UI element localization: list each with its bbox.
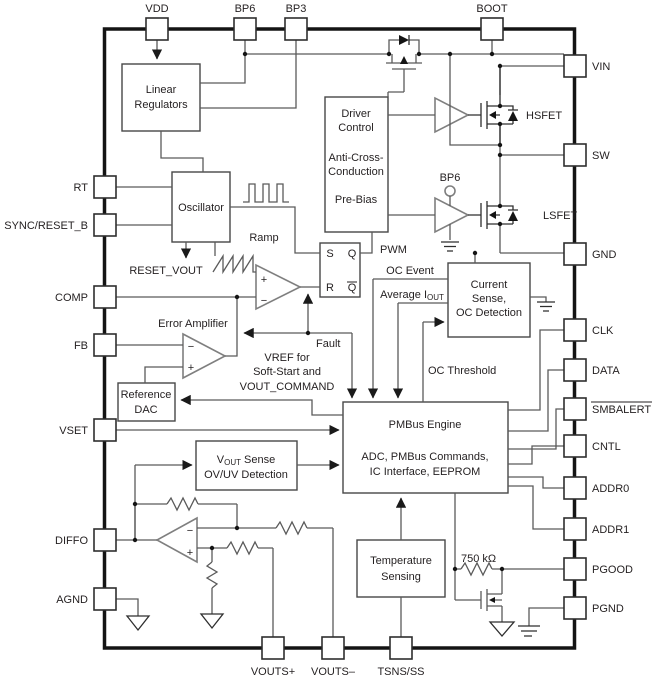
pin-label-data: DATA xyxy=(592,365,620,377)
pmbus-engine-label: PMBus Engine xyxy=(389,419,462,431)
svg-text:Control: Control xyxy=(338,122,373,134)
vref-label: VREF for xyxy=(264,352,310,364)
feedback-resistor xyxy=(167,498,198,510)
pin-label-gnd: GND xyxy=(592,249,617,261)
pin-vouts-plus xyxy=(262,637,284,659)
svg-text:Pre-Bias: Pre-Bias xyxy=(335,194,378,206)
pin-label-vdd: VDD xyxy=(145,3,168,15)
ground-ls-driver xyxy=(441,242,459,251)
wire-driver-inputs xyxy=(388,115,435,215)
latch-r: R xyxy=(326,282,334,294)
wire-smbalert xyxy=(508,409,564,449)
lsfet-symbol xyxy=(468,201,518,229)
diffamp-minus: − xyxy=(187,525,193,537)
wire-dac-to-plus xyxy=(145,367,183,383)
oc-event-label: OC Event xyxy=(386,265,434,277)
svg-text:Conduction: Conduction xyxy=(328,166,384,178)
pin-label-vouts-plus: VOUTS+ xyxy=(251,666,295,678)
diffamp-plus: + xyxy=(187,547,193,559)
ls-gate-driver xyxy=(435,198,468,232)
ground-pgnd xyxy=(518,626,540,636)
pin-pgnd xyxy=(564,597,586,619)
pmbus-engine-block xyxy=(343,402,508,493)
bp6-supply-node xyxy=(445,186,455,196)
blocks xyxy=(118,64,530,597)
pin-clk xyxy=(564,319,586,341)
wire-hs-driver-rail xyxy=(450,54,500,145)
pin-tsns-ss xyxy=(390,637,412,659)
fault-label: Fault xyxy=(316,338,340,350)
current-sense-label: Current xyxy=(471,279,508,291)
comparator-plus: + xyxy=(261,274,267,286)
wire-ldo-to-osc xyxy=(161,131,203,172)
pin-vset xyxy=(94,419,116,441)
pin-pgood xyxy=(564,558,586,580)
oscillator-label: Oscillator xyxy=(178,202,224,214)
ground-sense-divider xyxy=(201,614,223,628)
clock-waveform xyxy=(243,184,289,202)
svg-text:OC Detection: OC Detection xyxy=(456,307,522,319)
pin-label-pgood: PGOOD xyxy=(592,564,633,576)
wire-bp6-to-ldo xyxy=(200,40,245,83)
hsfet-symbol xyxy=(468,66,518,145)
block-diagram: Linear Regulators Oscillator Driver Cont… xyxy=(0,0,657,680)
wire-gnd xyxy=(475,224,564,263)
lsfet-label: LSFET xyxy=(543,210,578,222)
pin-label-rt: RT xyxy=(74,182,89,194)
wire-pmbus-to-dac xyxy=(181,400,343,415)
ground-current-sense xyxy=(537,302,555,311)
pin-label-vset: VSET xyxy=(59,425,88,437)
pin-label-fb: FB xyxy=(74,340,88,352)
pin-addr0 xyxy=(564,477,586,499)
pgood-fet-arrow xyxy=(489,597,495,603)
average-iout-label: Average IOUT xyxy=(380,289,444,302)
pin-label-cntl: CNTL xyxy=(592,441,621,453)
temperature-sensing-label: Temperature xyxy=(370,555,432,567)
pin-label-comp: COMP xyxy=(55,292,88,304)
latch-qbar: Q xyxy=(348,282,357,294)
reference-dac-label: Reference xyxy=(121,389,172,401)
latch-s: S xyxy=(326,248,333,260)
wire-sw xyxy=(500,124,564,206)
svg-text:Sense,: Sense, xyxy=(472,293,506,305)
latch-q: Q xyxy=(348,248,357,260)
wire-pgnd xyxy=(529,608,564,626)
pin-smbalert xyxy=(564,398,586,420)
wire-q-to-driver xyxy=(360,232,372,253)
pin-label-clk: CLK xyxy=(592,325,614,337)
temperature-sensing-block xyxy=(357,540,445,597)
svg-text:DAC: DAC xyxy=(134,404,157,416)
pin-data xyxy=(564,359,586,381)
pin-label-pgnd: PGND xyxy=(592,603,624,615)
pin-label-sync-reset-b: SYNC/RESET_B xyxy=(4,220,88,232)
pin-label-diffo: DIFFO xyxy=(55,535,88,547)
pgood-fet xyxy=(455,569,502,622)
ramp-waveform xyxy=(213,256,256,272)
wire-addr1 xyxy=(508,486,564,529)
wire-bp3-to-ldo xyxy=(200,40,296,108)
wire-pgood xyxy=(455,493,564,600)
ground-pgood-fet xyxy=(490,622,514,636)
pin-label-bp3: BP3 xyxy=(286,3,307,15)
pin-label-agnd: AGND xyxy=(56,594,88,606)
pin-label-tsns-ss: TSNS/SS xyxy=(377,666,424,678)
pin-agnd xyxy=(94,588,116,610)
pin-label-sw: SW xyxy=(592,150,610,162)
svg-text:ADC, PMBus Commands,: ADC, PMBus Commands, xyxy=(361,451,488,463)
svg-text:Regulators: Regulators xyxy=(134,99,188,111)
pin-bp6 xyxy=(234,18,256,40)
comparator-minus: − xyxy=(261,295,267,307)
pin-label-addr0: ADDR0 xyxy=(592,483,629,495)
wire-cs-gnd-stub xyxy=(530,297,546,302)
pin-sw xyxy=(564,144,586,166)
driver-control-label: Driver xyxy=(341,108,371,120)
svg-text:VOUT_COMMAND: VOUT_COMMAND xyxy=(240,381,335,393)
hsfet-label: HSFET xyxy=(526,110,562,122)
pwm-label: PWM xyxy=(380,244,407,256)
pin-label-bp6: BP6 xyxy=(235,3,256,15)
ramp-label: Ramp xyxy=(249,232,278,244)
reset-vout-label: RESET_VOUT xyxy=(129,265,203,277)
pin-label-addr1: ADDR1 xyxy=(592,524,629,536)
linear-regulators-label: Linear xyxy=(146,84,177,96)
pin-vdd xyxy=(146,18,168,40)
svg-text:OV/UV Detection: OV/UV Detection xyxy=(204,469,288,481)
pin-sync-reset-b xyxy=(94,214,116,236)
pin-cntl xyxy=(564,435,586,457)
pin-gnd xyxy=(564,243,586,265)
pin-boot xyxy=(481,18,503,40)
svg-text:IC Interface, EEPROM: IC Interface, EEPROM xyxy=(370,466,481,478)
bp6-rail-label: BP6 xyxy=(440,172,461,184)
pin-diffo xyxy=(94,529,116,551)
plus-resistor xyxy=(227,542,258,554)
bootstrap-diode xyxy=(399,35,409,64)
pin-label-smbalert: SMBALERT xyxy=(592,404,651,416)
minus-resistor xyxy=(276,522,307,534)
pin-vouts-minus xyxy=(322,637,344,659)
hs-gate-driver xyxy=(435,98,468,132)
pullup-value-label: 750 kΩ xyxy=(461,553,496,565)
pin-rt xyxy=(94,176,116,198)
ground-agnd xyxy=(127,616,149,630)
erramp-plus: + xyxy=(188,362,194,374)
pin-addr1 xyxy=(564,518,586,540)
pin-fb xyxy=(94,334,116,356)
pin-bp3 xyxy=(285,18,307,40)
pin-vin xyxy=(564,55,586,77)
error-amplifier-label: Error Amplifier xyxy=(158,318,228,330)
pin-label-vouts-minus: VOUTS– xyxy=(311,666,356,678)
erramp-minus: − xyxy=(188,341,194,353)
pin-comp xyxy=(94,286,116,308)
svg-text:Soft-Start and: Soft-Start and xyxy=(253,366,321,378)
svg-text:Sensing: Sensing xyxy=(381,571,421,583)
wire-vin xyxy=(500,66,564,95)
linear-regulators-block xyxy=(122,64,200,131)
oc-threshold-label: OC Threshold xyxy=(428,365,496,377)
pin-label-vin: VIN xyxy=(592,61,610,73)
wire-agnd xyxy=(116,599,138,616)
svg-text:Anti-Cross-: Anti-Cross- xyxy=(328,152,383,164)
gnd-resistor xyxy=(207,562,217,588)
wire-osc-to-s xyxy=(230,207,320,253)
pin-label-boot: BOOT xyxy=(476,3,507,15)
